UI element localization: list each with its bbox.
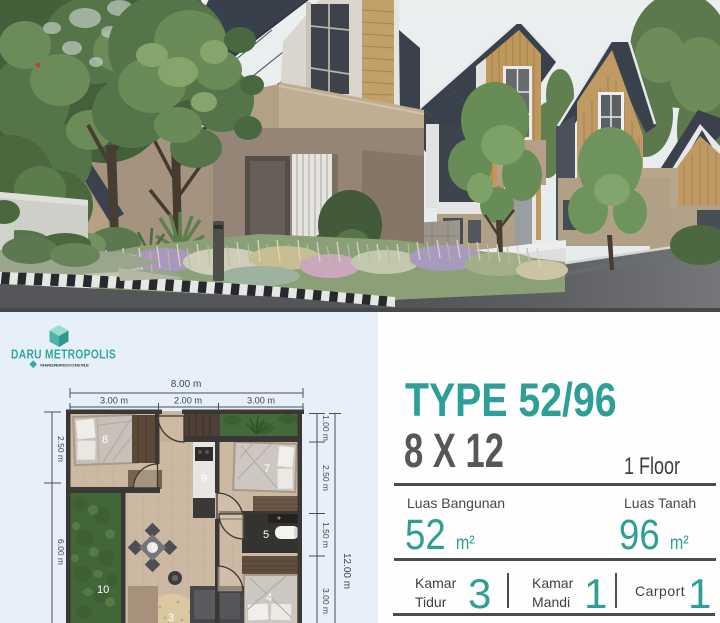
svg-text:9: 9	[201, 473, 207, 485]
svg-text:5: 5	[263, 529, 269, 541]
svg-text:1.50 m: 1.50 m	[321, 522, 331, 548]
svg-text:3.00 m: 3.00 m	[100, 396, 128, 406]
svg-text:1.00 m: 1.00 m	[321, 415, 331, 441]
svg-text:2.50 m: 2.50 m	[56, 436, 66, 462]
svg-text:12.00 m: 12.00 m	[341, 553, 352, 589]
svg-text:3.00 m: 3.00 m	[247, 396, 275, 406]
svg-text:8: 8	[102, 434, 108, 446]
svg-text:3: 3	[168, 612, 174, 623]
svg-text:6: 6	[151, 543, 157, 554]
svg-text:2.00 m: 2.00 m	[174, 396, 202, 406]
svg-text:DARU METROPOLIS: DARU METROPOLIS	[11, 349, 116, 362]
svg-text:3.00 m: 3.00 m	[321, 588, 331, 614]
svg-text:WHERE DREAMS DO COME TRUE: WHERE DREAMS DO COME TRUE	[40, 363, 89, 368]
svg-text:7: 7	[264, 463, 270, 475]
svg-text:4: 4	[266, 592, 272, 604]
svg-text:10: 10	[97, 584, 109, 596]
svg-text:6.00 m: 6.00 m	[56, 539, 66, 565]
svg-text:2.50 m: 2.50 m	[321, 465, 331, 491]
svg-text:8.00 m: 8.00 m	[171, 379, 202, 390]
